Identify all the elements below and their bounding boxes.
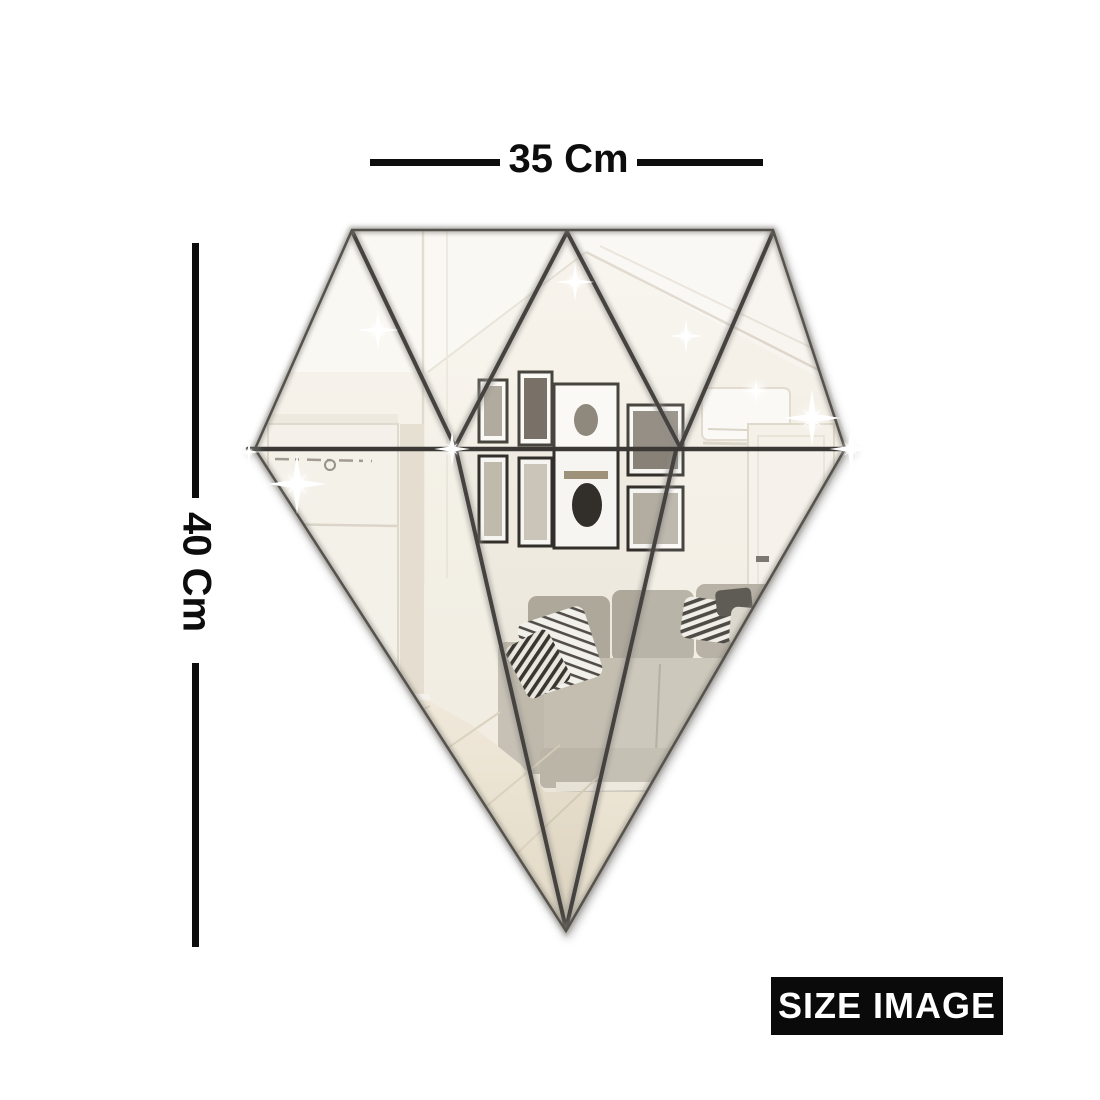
size-image-canvas: 35 Cm 40 Cm (0, 0, 1100, 1100)
size-image-badge-label: SIZE IMAGE (778, 985, 996, 1027)
size-image-badge: SIZE IMAGE (771, 977, 1003, 1035)
diamond-mirror-graphic (0, 0, 1100, 1100)
